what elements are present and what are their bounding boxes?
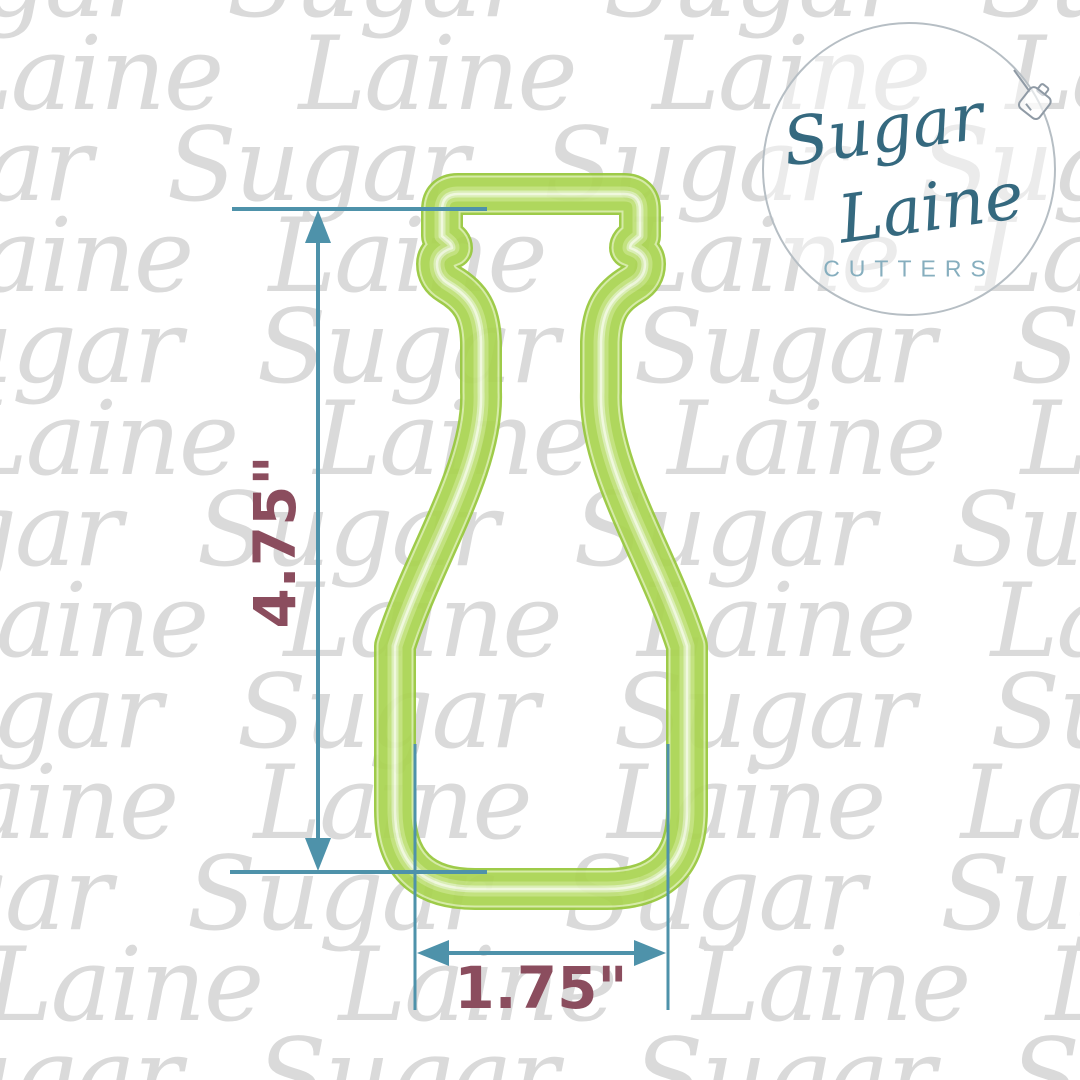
- logo-brand-word-sugar: Sugar: [779, 83, 987, 176]
- width-arrowhead-right: [634, 940, 666, 966]
- height-arrowhead-up: [305, 210, 331, 243]
- product-image-canvas: Sugar Sugar Sugar Sugar Sugar SugarLaine…: [0, 0, 1080, 1080]
- height-dimension-label: 4.75": [241, 455, 309, 628]
- height-arrowhead-down: [305, 838, 331, 871]
- logo-brand-word-cutters: CUTTERS: [823, 256, 995, 283]
- milk-bottle-cutter-shape: [395, 194, 687, 889]
- logo-brand-word-laine: Laine: [834, 162, 1027, 253]
- tag-icon: [992, 52, 1072, 132]
- brand-logo-badge: Sugar Laine CUTTERS: [762, 22, 1056, 316]
- width-arrowhead-left: [417, 940, 449, 966]
- width-dimension-label: 1.75": [454, 954, 627, 1022]
